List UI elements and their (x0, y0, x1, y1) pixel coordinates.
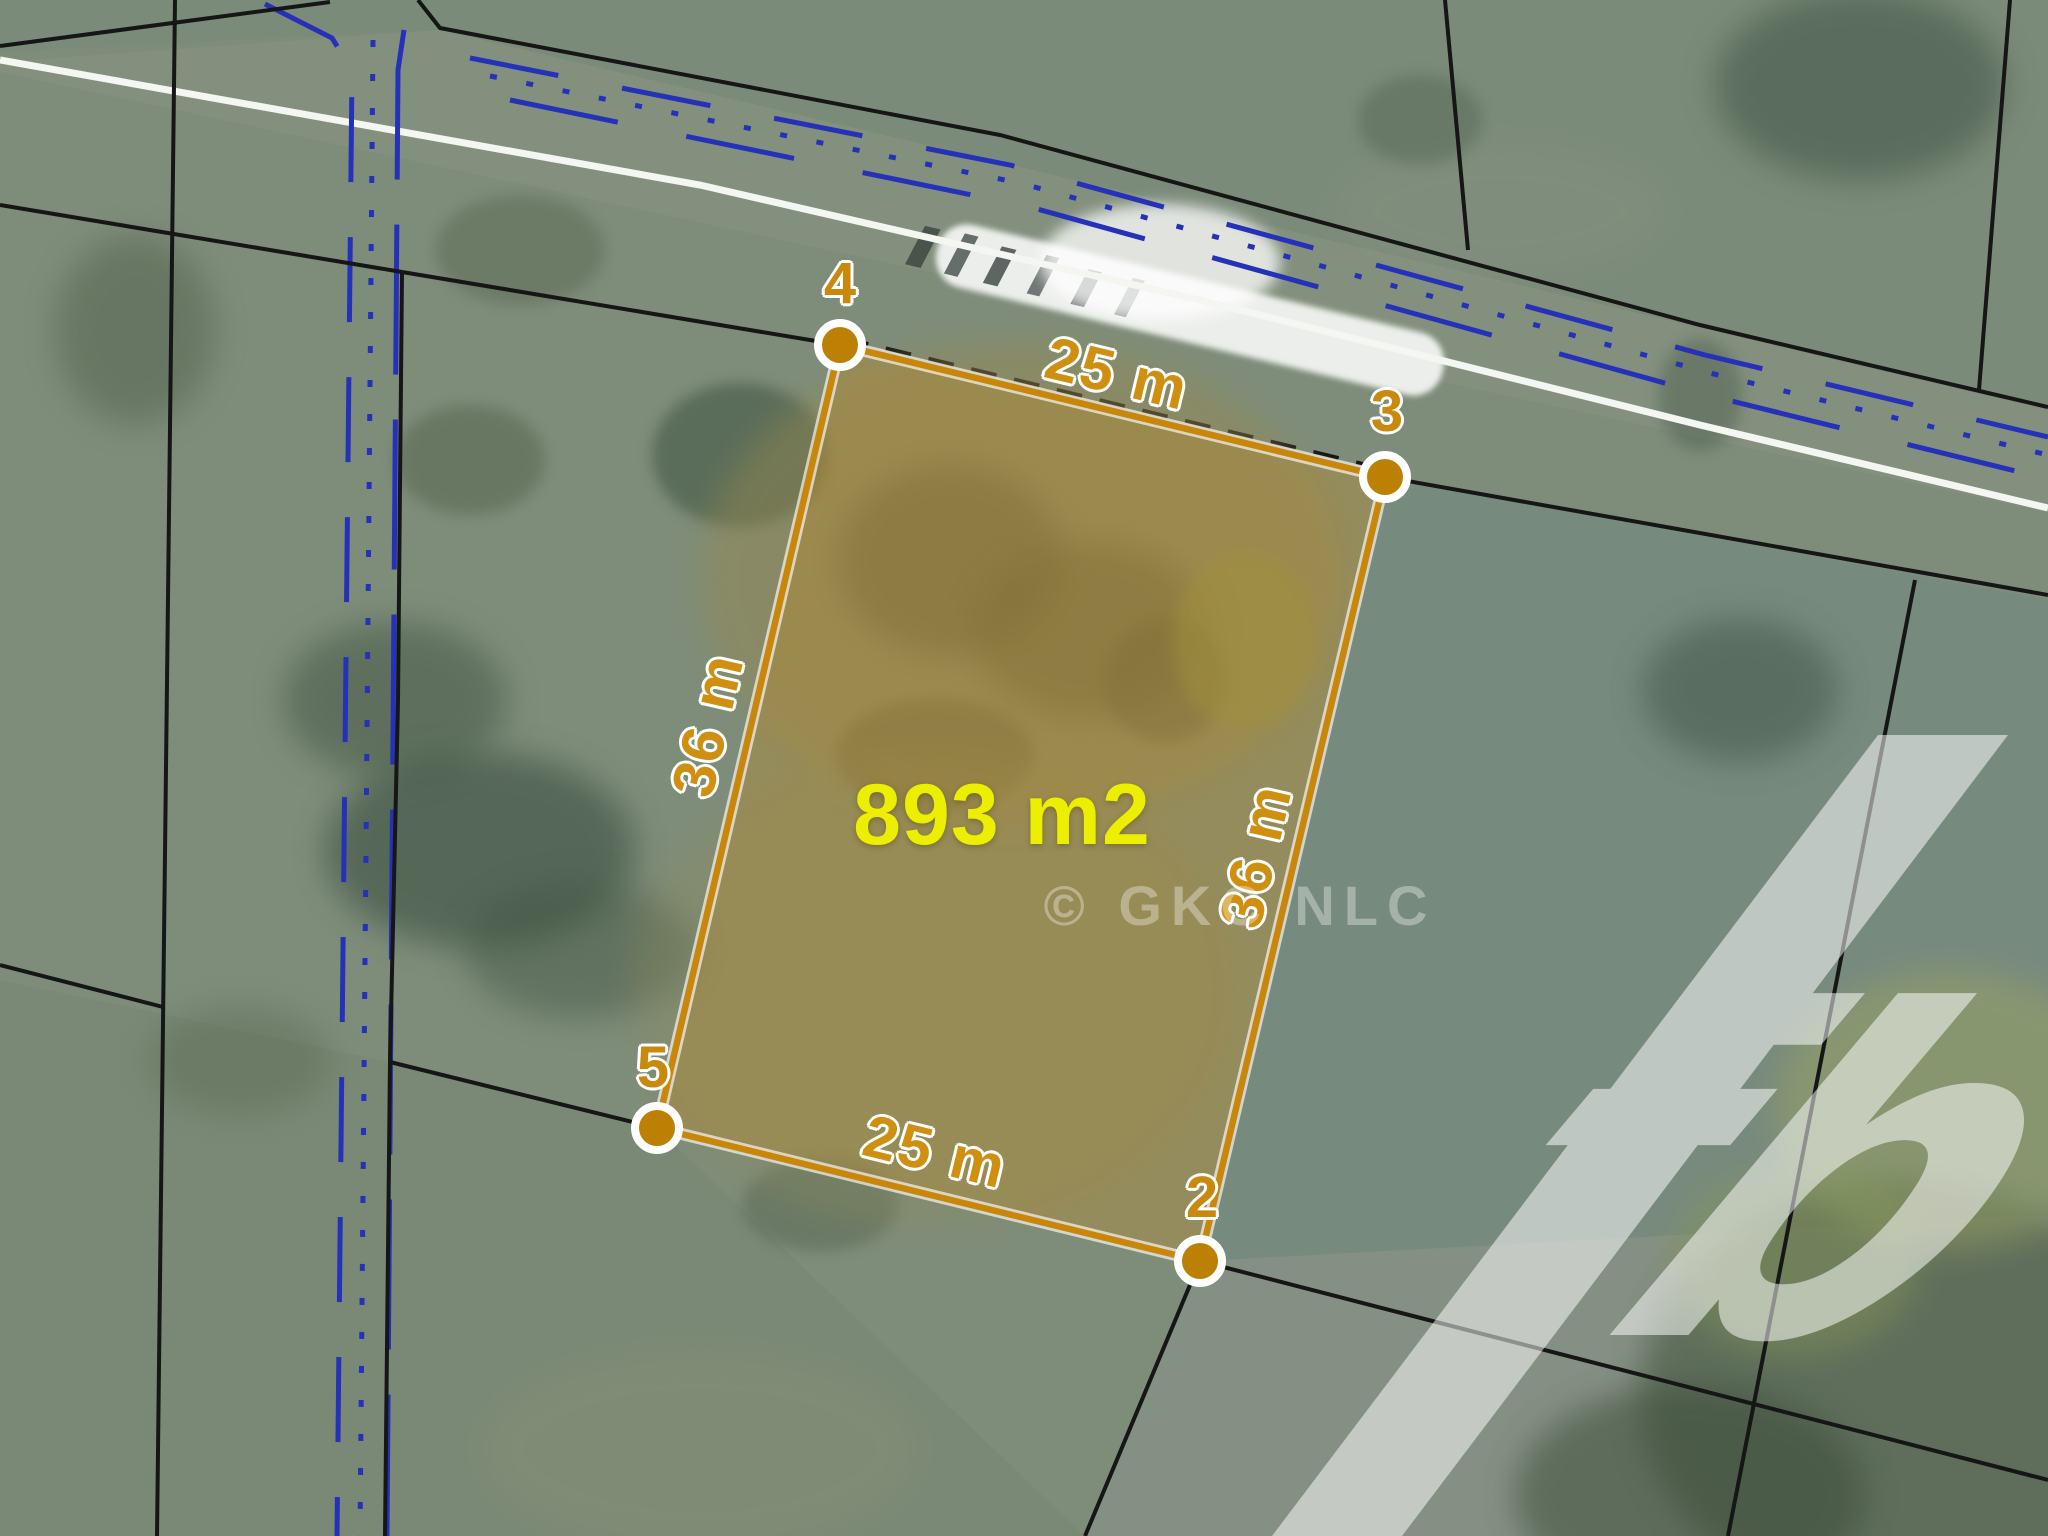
vertex-label-3: 3 (1371, 383, 1403, 441)
tree (1642, 618, 1838, 762)
boundary-line (402, 272, 840, 345)
field-patch (1330, 140, 1670, 280)
vertex-label-5: 5 (637, 1039, 669, 1097)
tree-shadow (1358, 75, 1482, 165)
vertex-marker-3[interactable] (1363, 455, 1407, 499)
tree-shadow (148, 1005, 332, 1115)
vertex-marker-5[interactable] (635, 1106, 679, 1150)
vertex-label-2: 2 (1186, 1169, 1218, 1227)
tree-shadow (55, 235, 215, 425)
parcel-area-label: 893 m2 (853, 772, 1151, 858)
vertex-marker-4[interactable] (818, 323, 862, 367)
tree-shadow (435, 195, 605, 305)
satellite-map-view: fb 4 3 2 5 25 m 25 m 36 m 36 m © GKC NLC… (0, 0, 2048, 1536)
boundary-line (0, 205, 402, 272)
map-provider-watermark: © GKC NLC (1044, 878, 1437, 934)
vertex-marker-2[interactable] (1178, 1239, 1222, 1283)
tree-shadow (395, 405, 545, 515)
vertex-label-4: 4 (824, 255, 856, 313)
